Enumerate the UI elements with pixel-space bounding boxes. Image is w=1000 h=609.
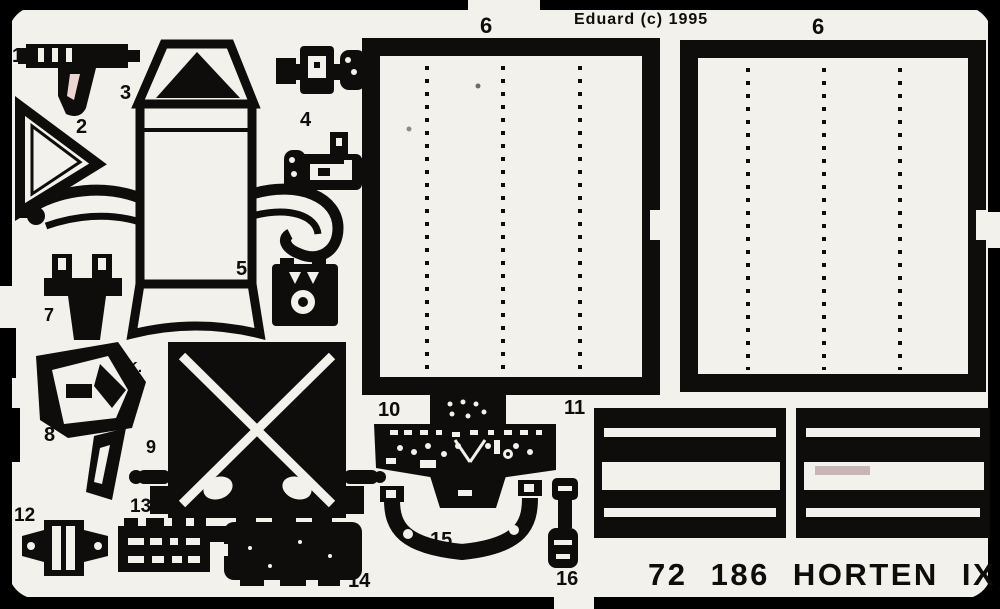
fret-tab-bottom xyxy=(554,597,594,609)
part-6-panel-left: 6 xyxy=(362,13,660,395)
fret-tab-top xyxy=(468,0,540,10)
scan-speck xyxy=(407,127,412,132)
part-16-label: 16 xyxy=(556,568,578,590)
edge-tab-left-2 xyxy=(0,408,20,462)
part-6-right-label: 6 xyxy=(812,14,824,39)
fret-drawing: Eduard (c) 1995 6 6 1 2 xyxy=(0,0,1000,609)
fret-tab-right xyxy=(988,212,1000,248)
scan-smudge xyxy=(815,466,870,475)
part-13-label: 13 xyxy=(130,496,151,517)
part-2-label: 2 xyxy=(76,116,87,138)
part-14-equipment-box: 14 xyxy=(222,514,371,592)
part-11-label: 11 xyxy=(564,397,585,419)
part-9-label: 9 xyxy=(146,437,156,457)
part-7-label: 7 xyxy=(44,305,54,325)
part-10-label: 10 xyxy=(378,399,400,421)
copyright-text: Eduard (c) 1995 xyxy=(574,11,708,28)
part-4-label: 4 xyxy=(300,109,312,131)
fret-tab-left xyxy=(0,286,12,330)
catalog-title: 72 186 HORTEN IX xyxy=(648,557,996,592)
part-3-label: 3 xyxy=(120,82,131,104)
part-6-left-label: 6 xyxy=(480,13,492,38)
edge-tab-left-1 xyxy=(0,328,16,378)
scan-speck xyxy=(476,84,481,89)
part-5-label: 5 xyxy=(236,258,247,280)
part-6-panel-right: 6 xyxy=(680,14,988,392)
photoetch-sheet-scan: Eduard (c) 1995 6 6 1 2 xyxy=(0,0,1000,609)
part-12-label: 12 xyxy=(14,505,35,526)
part-11-radiator-grilles: 11 xyxy=(564,397,990,538)
